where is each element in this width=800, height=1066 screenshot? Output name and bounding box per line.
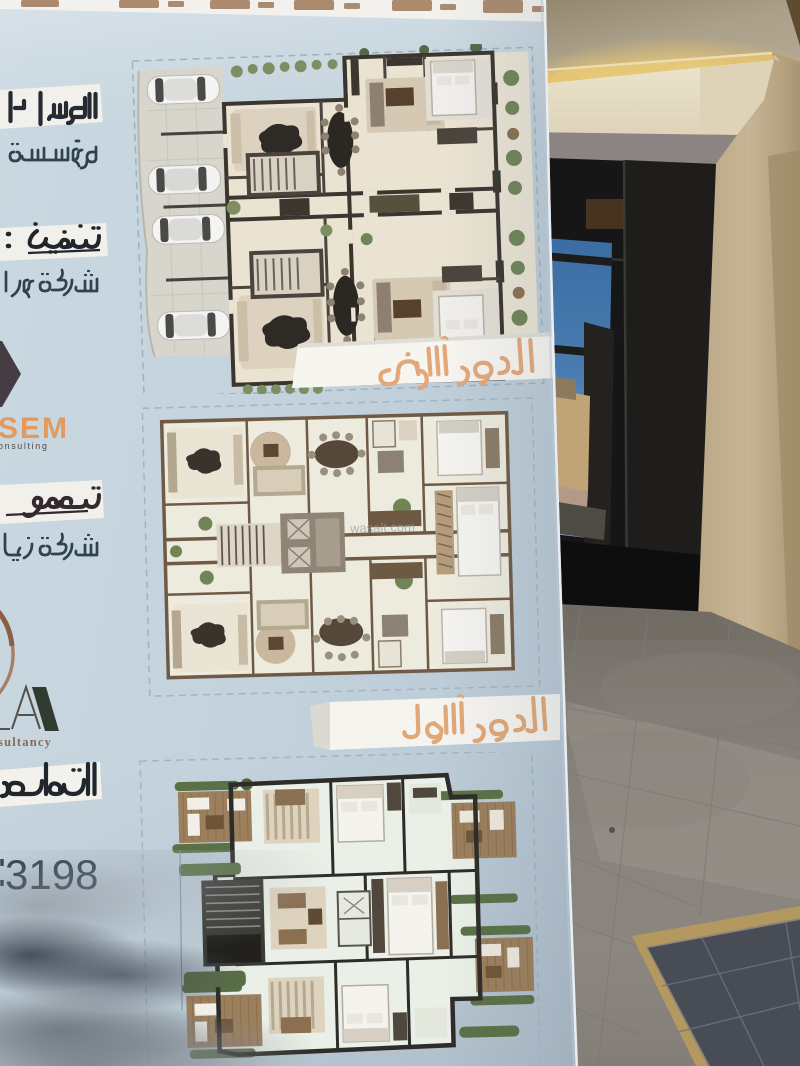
svg-text:wasalt.com: wasalt.com — [349, 519, 415, 536]
svg-text:sultancy: sultancy — [0, 735, 52, 749]
svg-text:onsulting: onsulting — [0, 441, 48, 451]
